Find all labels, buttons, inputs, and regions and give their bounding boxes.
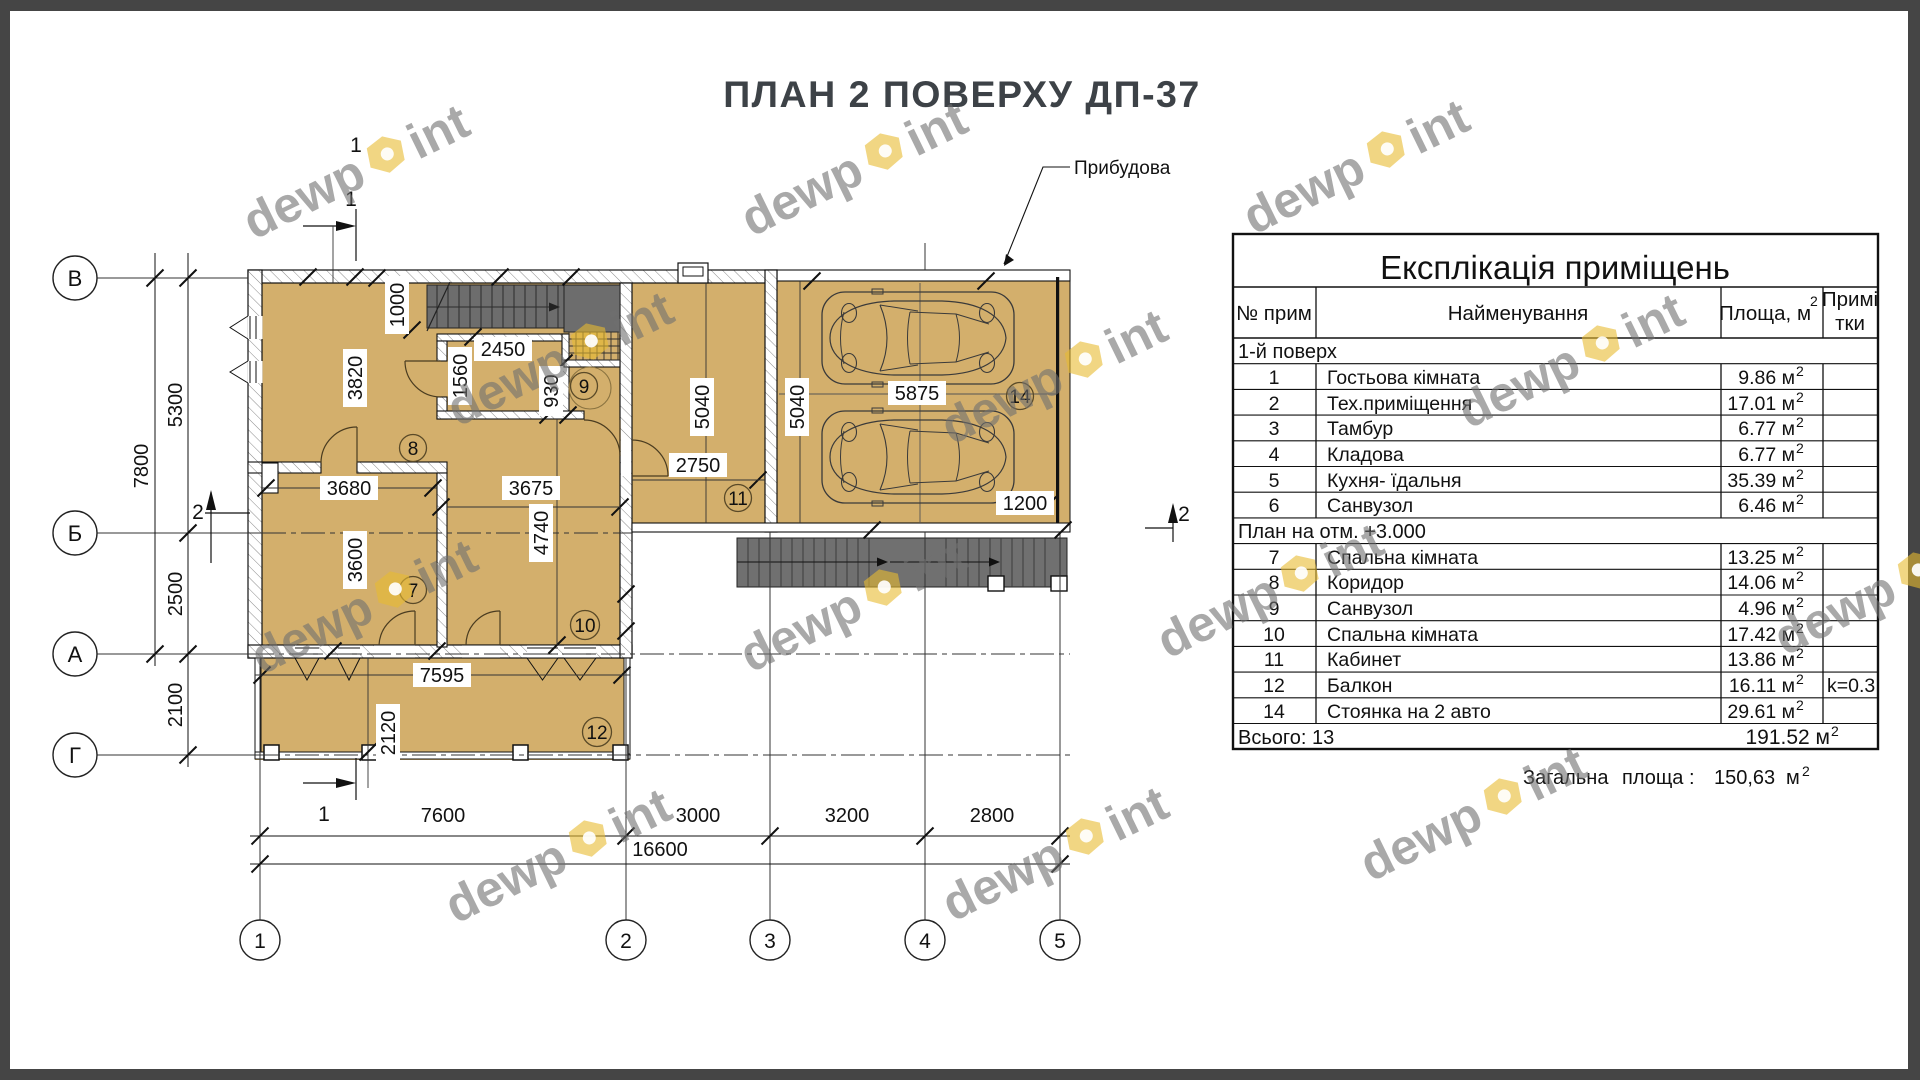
svg-text:Кухня- їдальня: Кухня- їдальня (1327, 470, 1462, 492)
svg-text:1: 1 (1269, 367, 1280, 389)
svg-text:2: 2 (1810, 293, 1818, 309)
svg-text:7800: 7800 (131, 444, 153, 489)
svg-text:№ прим: № прим (1236, 302, 1312, 325)
svg-text:В: В (68, 266, 83, 291)
svg-text:Б: Б (68, 521, 82, 546)
svg-text:Тамбур: Тамбур (1327, 418, 1393, 440)
svg-text:7600: 7600 (421, 805, 466, 827)
svg-text:1-й поверх: 1-й поверх (1238, 341, 1337, 363)
svg-text:2: 2 (1178, 503, 1190, 526)
svg-text:7595: 7595 (420, 665, 465, 687)
svg-text:2: 2 (1802, 763, 1810, 779)
svg-text:площа :: площа : (1622, 767, 1695, 789)
svg-text:10: 10 (574, 616, 595, 637)
svg-text:5: 5 (1269, 470, 1280, 492)
svg-text:3: 3 (1269, 418, 1280, 440)
svg-text:1000: 1000 (387, 283, 409, 328)
svg-text:12: 12 (586, 723, 607, 744)
svg-text:2800: 2800 (970, 805, 1015, 827)
svg-text:2: 2 (1796, 389, 1804, 405)
svg-text:3000: 3000 (676, 805, 721, 827)
svg-text:150,63: 150,63 (1714, 767, 1775, 789)
svg-text:2: 2 (620, 930, 632, 953)
svg-text:Всього: 13: Всього: 13 (1238, 727, 1334, 749)
svg-text:12: 12 (1263, 675, 1285, 697)
svg-text:3680: 3680 (327, 478, 372, 500)
svg-text:2: 2 (1269, 393, 1280, 415)
svg-text:Санвузол: Санвузол (1327, 495, 1413, 517)
svg-text:6.46 м: 6.46 м (1738, 495, 1795, 517)
svg-text:2: 2 (1831, 723, 1839, 739)
svg-text:2120: 2120 (378, 711, 400, 756)
svg-text:6.77 м: 6.77 м (1738, 418, 1795, 440)
svg-text:4: 4 (1269, 444, 1280, 466)
svg-text:Площа, м: Площа, м (1719, 302, 1811, 325)
svg-text:11: 11 (728, 489, 748, 510)
svg-text:2: 2 (1796, 363, 1804, 379)
svg-text:11: 11 (1264, 649, 1284, 671)
svg-text:Примі: Примі (1822, 288, 1878, 311)
svg-text:Кабинет: Кабинет (1327, 649, 1401, 671)
svg-text:ПЛАН 2 ПОВЕРХУ ДП-37: ПЛАН 2 ПОВЕРХУ ДП-37 (723, 73, 1201, 115)
svg-text:3200: 3200 (825, 805, 870, 827)
svg-text:А: А (68, 642, 83, 667)
svg-text:29.61 м: 29.61 м (1727, 701, 1795, 723)
svg-text:10: 10 (1263, 624, 1285, 646)
svg-text:5040: 5040 (692, 385, 714, 430)
svg-text:7: 7 (1269, 547, 1280, 569)
svg-text:2: 2 (1796, 491, 1804, 507)
svg-text:Г: Г (69, 743, 81, 768)
svg-text:2: 2 (1796, 414, 1804, 430)
svg-text:Прибудова: Прибудова (1074, 158, 1171, 179)
svg-text:2500: 2500 (165, 572, 187, 617)
svg-text:9: 9 (579, 377, 590, 398)
svg-text:5: 5 (1054, 930, 1066, 953)
svg-text:тки: тки (1835, 312, 1865, 335)
svg-text:5875: 5875 (895, 383, 940, 405)
svg-text:k=0.3: k=0.3 (1827, 675, 1875, 697)
svg-text:6.77 м: 6.77 м (1738, 444, 1795, 466)
svg-text:17.01 м: 17.01 м (1727, 393, 1795, 415)
svg-text:14.06 м: 14.06 м (1727, 572, 1795, 594)
svg-text:6: 6 (1269, 495, 1280, 517)
svg-text:м: м (1786, 767, 1800, 789)
svg-text:1: 1 (254, 930, 266, 953)
svg-text:Кладова: Кладова (1327, 444, 1404, 466)
svg-text:1200: 1200 (1003, 493, 1048, 515)
svg-text:2: 2 (1796, 697, 1804, 713)
svg-text:Експлікація приміщень: Експлікація приміщень (1380, 249, 1730, 286)
svg-text:5300: 5300 (165, 383, 187, 428)
svg-text:3820: 3820 (345, 356, 367, 401)
svg-text:14: 14 (1263, 701, 1285, 723)
svg-text:Тех.приміщення: Тех.приміщення (1327, 393, 1472, 415)
svg-text:4: 4 (919, 930, 931, 953)
svg-text:Санвузол: Санвузол (1327, 598, 1413, 620)
svg-text:2: 2 (1796, 671, 1804, 687)
svg-text:2750: 2750 (676, 455, 721, 477)
svg-text:Найменування: Найменування (1448, 302, 1589, 325)
svg-text:3: 3 (764, 930, 776, 953)
svg-text:16.11 м: 16.11 м (1729, 675, 1795, 697)
svg-text:3600: 3600 (345, 538, 367, 583)
svg-text:4740: 4740 (531, 511, 553, 556)
svg-text:13.25 м: 13.25 м (1727, 547, 1795, 569)
svg-text:35.39 м: 35.39 м (1727, 470, 1795, 492)
svg-text:Балкон: Балкон (1327, 675, 1392, 697)
svg-text:191.52 м: 191.52 м (1745, 726, 1830, 749)
svg-text:2: 2 (1796, 466, 1804, 482)
svg-text:5040: 5040 (787, 385, 809, 430)
svg-text:Спальна кімната: Спальна кімната (1327, 624, 1478, 646)
svg-text:3675: 3675 (509, 478, 554, 500)
svg-text:2: 2 (1796, 440, 1804, 456)
svg-text:2: 2 (192, 501, 204, 524)
svg-text:2: 2 (1796, 568, 1804, 584)
svg-text:8: 8 (408, 439, 419, 460)
svg-text:Стоянка на 2 авто: Стоянка на 2 авто (1327, 701, 1491, 723)
svg-text:2: 2 (1796, 543, 1804, 559)
svg-text:2100: 2100 (165, 683, 187, 728)
svg-text:9.86 м: 9.86 м (1738, 367, 1795, 389)
svg-text:1: 1 (318, 803, 330, 826)
